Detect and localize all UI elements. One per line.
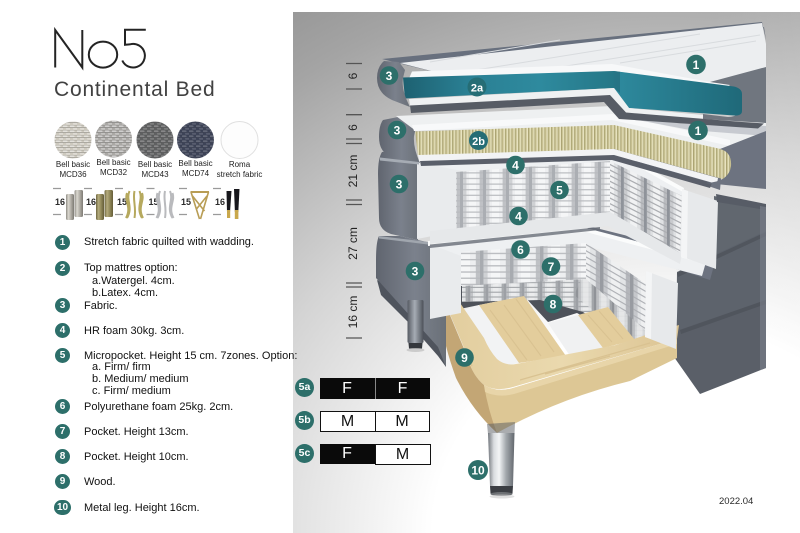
svg-text:8: 8 xyxy=(550,298,557,312)
svg-text:10: 10 xyxy=(471,464,485,478)
svg-text:2b: 2b xyxy=(472,136,485,148)
svg-text:4: 4 xyxy=(515,210,522,224)
svg-text:6: 6 xyxy=(346,72,360,79)
svg-text:6: 6 xyxy=(517,243,524,257)
svg-text:5: 5 xyxy=(556,184,563,198)
svg-text:27 cm: 27 cm xyxy=(346,227,360,260)
svg-text:1: 1 xyxy=(693,58,700,72)
svg-text:2a: 2a xyxy=(471,83,484,95)
svg-text:1: 1 xyxy=(695,124,702,138)
svg-text:21 cm: 21 cm xyxy=(346,155,360,188)
svg-text:4: 4 xyxy=(512,159,519,173)
svg-text:6: 6 xyxy=(346,124,360,131)
svg-text:16 cm: 16 cm xyxy=(346,296,360,329)
svg-text:9: 9 xyxy=(461,351,468,365)
svg-text:7: 7 xyxy=(548,260,555,274)
